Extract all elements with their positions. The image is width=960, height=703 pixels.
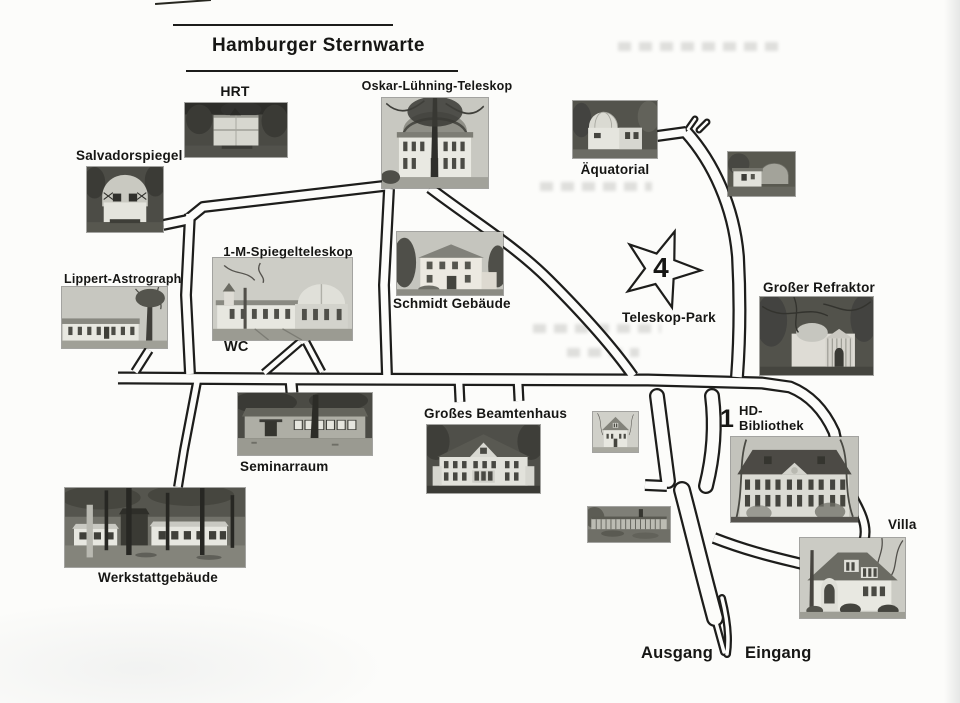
photo-werkstattgebaeude [65, 488, 245, 567]
photo-oskar-luehning-teleskop [382, 98, 488, 188]
photo-lippert-astrograph [62, 287, 167, 348]
label-seminarraum: Seminarraum [240, 459, 329, 474]
title-rule-bottom [186, 70, 458, 72]
label-teleskop-park: Teleskop-Park [622, 310, 716, 325]
photo-grosser-refraktor [760, 297, 873, 375]
photo-aequatorial [573, 101, 657, 158]
photo-salvadorspiegel [87, 167, 163, 232]
label-oskar-luehning-teleskop: Oskar-Lühning-Teleskop [357, 79, 517, 93]
photo-grosses-beamtenhaus [427, 425, 540, 493]
photo-1m-spiegelteleskop [213, 258, 352, 340]
label-schmidt-gebaeude: Schmidt Gebäude [393, 296, 511, 311]
label-grosser-refraktor: Großer Refraktor [763, 280, 875, 295]
observatory-site-map: Hamburger Sternwarte [0, 0, 960, 703]
photo-seminarraum [238, 393, 372, 455]
label-eingang: Eingang [745, 644, 811, 663]
label-hd-bibliothek: HD- Bibliothek [739, 403, 804, 433]
marker-teleskop-park-4: 4 [645, 252, 677, 284]
label-ausgang: Ausgang [641, 644, 713, 663]
page-title: Hamburger Sternwarte [212, 35, 425, 57]
photo-small-house [593, 412, 638, 452]
photo-hrt [185, 103, 287, 157]
marker-hd-bibliothek-1: 1 [720, 405, 734, 434]
label-villa: Villa [888, 517, 917, 532]
label-aequatorial: Äquatorial [565, 162, 665, 177]
label-hrt: HRT [205, 83, 265, 99]
label-werkstattgebaeude: Werkstattgebäude [98, 570, 218, 585]
label-1m-spiegelteleskop: 1-M-Spiegelteleskop [213, 244, 363, 259]
photo-hd-bibliothek [731, 437, 858, 522]
label-lippert-astrograph: Lippert-Astrograph [64, 272, 182, 286]
photo-schmidt-gebaeude [397, 232, 503, 295]
photo-villa [800, 538, 905, 618]
label-wc: WC [224, 339, 249, 355]
title-rule-top [173, 24, 393, 26]
label-salvadorspiegel: Salvadorspiegel [76, 148, 183, 163]
photo-small-dome-building [728, 152, 795, 196]
photo-greenhouse-building [588, 507, 670, 542]
label-grosses-beamtenhaus: Großes Beamtenhaus [424, 406, 567, 421]
